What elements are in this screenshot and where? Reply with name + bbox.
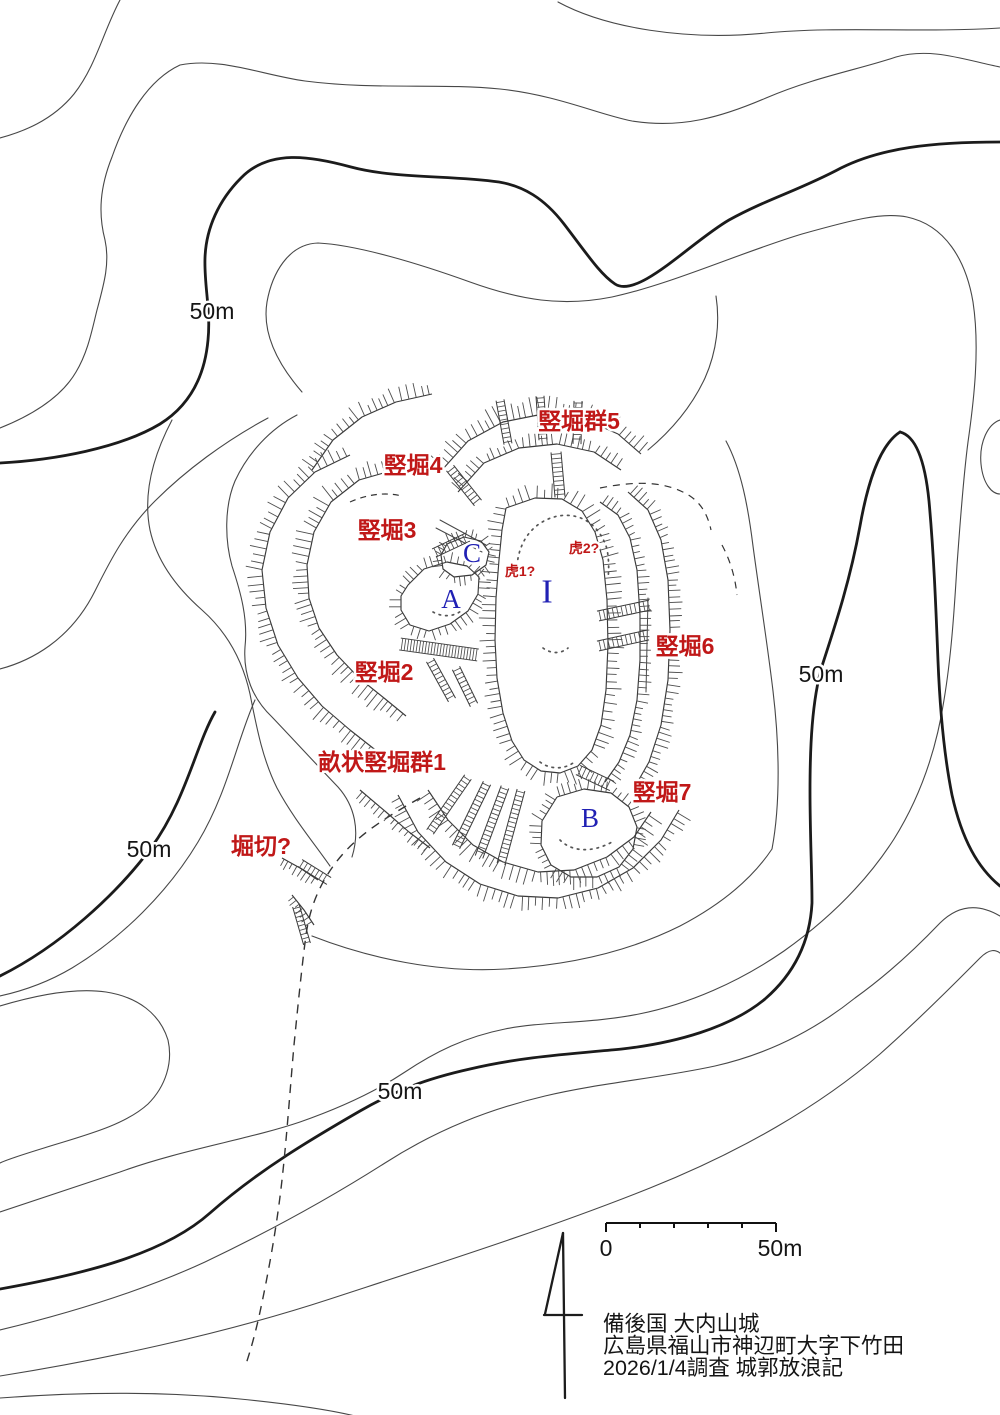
title-line-3: 2026/1/4調査 城郭放浪記 bbox=[603, 1356, 843, 1380]
hachure-tick bbox=[669, 602, 683, 603]
title-line-1: 備後国 大内山城 bbox=[603, 1312, 759, 1336]
gate-label-koguchi1: 虎1? bbox=[505, 563, 535, 579]
enclosure-label-kuruwa-I: I bbox=[541, 574, 552, 611]
feature-label-tatebori2: 竪堀2 bbox=[355, 659, 414, 685]
gate-label-koguchi2: 虎2? bbox=[569, 540, 599, 556]
elevation-label-elev-nw: 50m bbox=[190, 298, 235, 324]
elevation-label-elev-s: 50m bbox=[378, 1078, 423, 1104]
hachure-tick bbox=[487, 668, 497, 669]
elevation-label-elev-sw: 50m bbox=[127, 836, 172, 862]
hachure-tick bbox=[471, 575, 472, 581]
map-canvas: 50m50m50m50m竪堀群5竪堀4竪堀3竪堀6竪堀2畝状竪堀群1竪堀7堀切?… bbox=[0, 0, 1000, 1415]
feature-label-unejo-tateborigun1: 畝状竪堀群1 bbox=[318, 749, 446, 775]
scale-end-label: 50m bbox=[758, 1235, 803, 1261]
feature-label-tatebori4: 竪堀4 bbox=[384, 452, 443, 478]
hachure-tick bbox=[486, 675, 496, 676]
elevation-label-elev-e: 50m bbox=[799, 661, 844, 687]
hachure-tick bbox=[557, 898, 558, 909]
hachure-tick bbox=[552, 484, 553, 499]
hachure-tick bbox=[637, 570, 646, 571]
feature-label-tateborigun5: 竪堀群5 bbox=[538, 408, 620, 434]
hachure-tick bbox=[607, 668, 619, 669]
hachure-tick bbox=[529, 826, 541, 827]
feature-label-tatebori6: 竪堀6 bbox=[656, 633, 715, 659]
feature-label-tatebori7: 竪堀7 bbox=[633, 779, 692, 805]
hachure-tick bbox=[542, 897, 543, 910]
site-map: 50m50m50m50m竪堀群5竪堀4竪堀3竪堀6竪堀2畝状竪堀群1竪堀7堀切?… bbox=[0, 0, 1000, 1415]
hachure-tick bbox=[541, 872, 542, 882]
title-line-2: 広島県福山市神辺町大字下竹田 bbox=[603, 1334, 904, 1358]
hachure-tick bbox=[529, 832, 541, 833]
enclosure-label-kuruwa-C: C bbox=[463, 538, 481, 568]
feature-label-tatebori3: 竪堀3 bbox=[358, 517, 417, 543]
hachure-tick bbox=[668, 672, 682, 673]
map-background bbox=[0, 0, 1000, 1415]
enclosure-label-kuruwa-A: A bbox=[441, 584, 461, 614]
hachure-tick bbox=[638, 589, 647, 590]
enclosure-label-kuruwa-B: B bbox=[581, 803, 599, 833]
feature-label-horikiri: 堀切? bbox=[231, 833, 291, 859]
hachure-tick bbox=[564, 871, 565, 881]
scale-zero-label: 0 bbox=[600, 1235, 613, 1261]
